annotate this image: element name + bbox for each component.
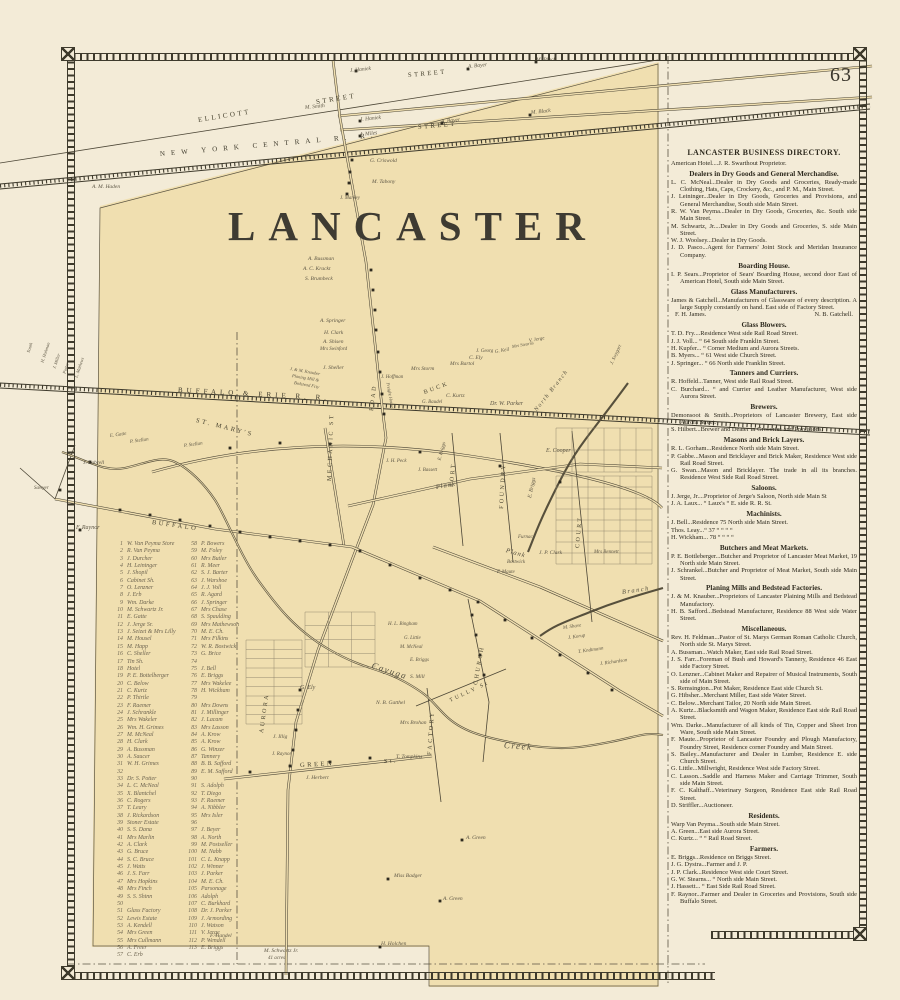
directory-entry: Wm. Darke...Manufacturer of all kinds of… <box>671 722 857 737</box>
resident-list-item: 94A. Nibbler <box>186 805 264 812</box>
directory-entry: A. Kurtz...Blacksmith and Wagon Maker, R… <box>671 707 857 722</box>
frame-border-top <box>67 53 859 61</box>
map-label: Mrs Bennett <box>594 550 619 555</box>
frame-border-left <box>67 53 75 980</box>
resident-list-item: 106Adolph <box>186 894 264 901</box>
resident-list-item: 69Mrs Mathewson <box>186 622 264 629</box>
resident-list-item: 99M. Postseller <box>186 842 264 849</box>
directory-entry: G. Hibsher...Merchant Miller, East side … <box>671 692 857 699</box>
directory-section-heading: Brewers. <box>671 403 857 411</box>
resident-list-item: 102J. Winner <box>186 864 264 871</box>
resident-list-item: 64J. J. Voll <box>186 585 264 592</box>
map-label: A. Shisen <box>323 339 343 345</box>
directory-entry: M. Schwartz, Jr....Dealer in Dry Goods a… <box>671 223 857 238</box>
directory-entry: J. S. Farr...Foreman of Bush and Howard'… <box>671 656 857 671</box>
resident-list-item: 84A. Krow <box>186 732 264 739</box>
resident-list-item: 50 <box>112 901 190 908</box>
resident-list-item: 22P. Thirtle <box>112 695 190 702</box>
resident-list-item: 86G. Winzer <box>186 747 264 754</box>
resident-list-item: 82J. Lacam <box>186 717 264 724</box>
directory-intro: American Hotel....J. R. Swarthout Propri… <box>671 160 857 167</box>
resident-list-item: 47Mrs Hopkins <box>112 879 190 886</box>
resident-list-item: 2R. Van Peyma <box>112 548 190 555</box>
resident-list-item: 14M. Housel <box>112 636 190 643</box>
resident-list-item: 24J. Schrankle <box>112 710 190 717</box>
resident-list-item: 75J. Bell <box>186 666 264 673</box>
map-label: Mrs Bartol <box>450 361 474 367</box>
map-label: C. Kurtz <box>446 393 465 399</box>
map-label: J. Georg <box>476 349 493 354</box>
resident-list-item: 60Mrs Butler <box>186 556 264 563</box>
resident-list-item: 97J. Beyer <box>186 827 264 834</box>
map-label: J. P. Clark <box>539 550 562 556</box>
resident-list-item: 15M. Happ <box>112 644 190 651</box>
directory-entry: E. Briggs...Residence on Briggs Street. <box>671 854 857 861</box>
map-label: H. Clark <box>324 330 343 336</box>
resident-list-item: 1W. Van Peyma Store <box>112 541 190 548</box>
resident-list-item: 104M. E. Ch. <box>186 879 264 886</box>
resident-list-item: 79 <box>186 695 264 702</box>
frame-corner-bottom-right <box>853 927 867 941</box>
frame-corner-top-right <box>853 47 867 61</box>
map-label: A. C. Krackt <box>303 266 331 272</box>
resident-list-item: 38J. Rickardson <box>112 813 190 820</box>
resident-list-item: 21C. Kurtz <box>112 688 190 695</box>
directory-entry: B. Myers... “ 61 West side Church Street… <box>671 352 857 359</box>
directory-sections: Dealers in Dry Goods and General Merchan… <box>671 170 857 905</box>
resident-list-item: 26Wm. H. Grimes <box>112 725 190 732</box>
map-label: A. Springer <box>320 318 345 324</box>
resident-list-item: 37T. Leary <box>112 805 190 812</box>
directory-section-heading: Butchers and Meat Markets. <box>671 544 857 552</box>
map-label: M. Tabony <box>372 179 395 185</box>
resident-list-item: 72W. R. Bostwick <box>186 644 264 651</box>
directory-entry: S. Remsington...Pot Maker, Residence Eas… <box>671 685 857 692</box>
directory-section-heading: Boarding House. <box>671 262 857 270</box>
resident-list-item: 62S. J. Barter <box>186 570 264 577</box>
resident-list-item: 3J. Durcher <box>112 556 190 563</box>
directory-entry: W. J. Woolsey...Dealer in Dry Goods. <box>671 237 857 244</box>
directory-section-heading: Planing Mills and Bedstead Factories. <box>671 584 857 592</box>
resident-list-item: 55Mrs Cullmann <box>112 938 190 945</box>
map-label: N. B. Gatthel <box>376 700 405 706</box>
directory-entry: A. Bussman...Watch Maker, East side Rail… <box>671 649 857 656</box>
resident-list-item: 19P. E. Bottelberger <box>112 673 190 680</box>
map-label: F. Maute <box>497 570 515 575</box>
directory-entry: J. A. Laux... “ Laux's “ E. side R. R. S… <box>671 500 857 507</box>
map-label: J. Hoffman <box>381 375 403 380</box>
directory-entry: J. Leininger...Dealer in Dry Goods, Groc… <box>671 193 857 208</box>
resident-list-item: 45J. Watts <box>112 864 190 871</box>
page-number: 63 <box>830 64 852 87</box>
directory-entry: Warp Van Peyma...South side Main Street. <box>671 821 857 828</box>
directory-entry: O. Lenzner...Cabinet Maker and Repairer … <box>671 671 857 686</box>
frame-corner-top-left <box>61 47 75 61</box>
resident-list-item: 4H. Leininger <box>112 563 190 570</box>
resident-list-item: 18Hotel <box>112 666 190 673</box>
resident-list-item: 111V. Jerge <box>186 930 264 937</box>
directory-entry: C. Below...Merchant Tailor, 20 North sid… <box>671 700 857 707</box>
directory-entry: L. C. McNeal...Dealer in Dry Goods and G… <box>671 179 857 194</box>
map-label: G. Criswold <box>370 158 397 164</box>
directory-entry: P. E. Bottleberger...Butcher and Proprie… <box>671 553 857 568</box>
map-label: M. McNeal <box>400 645 423 650</box>
resident-list-item: 20C. Below <box>112 681 190 688</box>
directory-entry: J. Hassett... “ East Side Rail Road Stre… <box>671 883 857 890</box>
resident-list-item: 90 <box>186 776 264 783</box>
directory-section-heading: Machinists. <box>671 510 857 518</box>
map-label: 41 acres <box>268 956 285 961</box>
resident-list-item: 68S. Spaulding <box>186 614 264 621</box>
map-label: Dr. W. Parker <box>490 401 523 407</box>
resident-list-item: 110J. Watson <box>186 923 264 930</box>
map-label: J. Labrell <box>83 460 104 466</box>
directory-section-heading: Residents. <box>671 812 857 820</box>
map-label: E. Briggs <box>410 658 429 663</box>
directory-entry: C. Kurtz... “ “ Rail Road Street. <box>671 835 857 842</box>
resident-list-item: 73G. Brice <box>186 651 264 658</box>
directory-entry: J. P. Clark...Residence West side Court … <box>671 869 857 876</box>
resident-list-item: 61R. Meer <box>186 563 264 570</box>
map-label: A. Green <box>443 896 463 902</box>
resident-list-item: 6Cabinet Sh. <box>112 578 190 585</box>
map-label: J. Markey <box>340 196 360 201</box>
directory-section-heading: Masons and Brick Layers. <box>671 436 857 444</box>
resident-list-item: 81J. Millinger <box>186 710 264 717</box>
resident-list-item: 49S. S. Shinn <box>112 894 190 901</box>
resident-list-item: 67Mrs Chase <box>186 607 264 614</box>
directory-entry: H. Wickham... 78 “ “ “ “ <box>671 534 857 541</box>
resident-list-item: 103J. Parker <box>186 871 264 878</box>
resident-list-item: 96 <box>186 820 264 827</box>
resident-list-item: 95Mrs Isler <box>186 813 264 820</box>
resident-list-item: 88B. B. Safford <box>186 761 264 768</box>
resident-list-item: 85A. Krow <box>186 739 264 746</box>
directory-entry: S. Bailey...Manufacturer and Dealer in L… <box>671 751 857 766</box>
resident-list-item: 105Parsonage <box>186 886 264 893</box>
directory-entry: Rev. H. Feldman...Pastor of St. Marys Ge… <box>671 634 857 649</box>
directory-entry: J. J. Voll... “ 64 South side Franklin S… <box>671 338 857 345</box>
resident-list-item: 43G. Bruce <box>112 849 190 856</box>
frame-border-right <box>859 53 867 939</box>
map-label: Sawyer <box>34 486 49 491</box>
resident-list-item: 76E. Briggs <box>186 673 264 680</box>
resident-list-item: 42A. Clark <box>112 842 190 849</box>
map-label: Bostwick <box>507 560 525 565</box>
resident-list-item: 83Mrs Lasson <box>186 725 264 732</box>
frame-corner-bottom-left <box>61 966 75 980</box>
map-label: T. Tompkins <box>396 754 422 760</box>
directory-entry: G. W. Stearns... “ North side Main Stree… <box>671 876 857 883</box>
map-label: H. L. Bingham <box>388 622 417 627</box>
map-label: S. Mill <box>410 674 425 680</box>
map-label: A. Green <box>466 835 486 841</box>
map-label: F. Raynor <box>76 525 100 531</box>
resident-list-item: 113E. Briggs <box>186 945 264 952</box>
directory-entry: J. D. Pasco...Agent for Farmers' Joint S… <box>671 244 857 259</box>
directory-entry: A. Green...East side Aurora Street. <box>671 828 857 835</box>
directory-entry: H. B. Safford...Bedstead Manufacturer, R… <box>671 608 857 623</box>
resident-list-item: 27M. McNeal <box>112 732 190 739</box>
map-label: G. Baudel <box>422 400 442 405</box>
resident-list-item: 29A. Bussman <box>112 747 190 754</box>
directory-section-heading: Glass Manufacturers. <box>671 288 857 296</box>
resident-list-item: 71Mrs Filkins <box>186 636 264 643</box>
map-label: Mrs Brohan <box>400 720 427 726</box>
resident-list-item: 13J. Seizet & Mrs Lilly <box>112 629 190 636</box>
directory-entry: G. Swan...Mason and Bricklayer. The trad… <box>671 467 857 482</box>
directory-section-heading: Dealers in Dry Goods and General Merchan… <box>671 170 857 178</box>
directory-entry: J. Springer... “ 66 North side Franklin … <box>671 360 857 367</box>
directory-entry: P. Gabbe...Mason and Bricklayer and Bric… <box>671 453 857 468</box>
resident-list-item: 5J. Shopil <box>112 570 190 577</box>
resident-list-item: 74 <box>186 659 264 666</box>
resident-list-item: 80Mrs Downs <box>186 703 264 710</box>
resident-list-item: 46J. S. Farr <box>112 871 190 878</box>
resident-list-item: 33Dr. S. Potter <box>112 776 190 783</box>
map-label: Mrs Storm <box>411 366 434 372</box>
resident-list-item: 70M. E. Ch. <box>186 629 264 636</box>
directory-entry: R. L. Gorham...Residence North side Main… <box>671 445 857 452</box>
resident-list-item: 57C. Erb <box>112 952 190 959</box>
resident-list-column-2: 58P. Bowers59M. Foley60Mrs Butler61R. Me… <box>186 541 264 952</box>
resident-list-item: 35X. Blantchel <box>112 791 190 798</box>
map-label: J. H. Peck <box>386 459 407 464</box>
directory-entry: F. H. James.N. B. Gatchell. <box>671 311 857 319</box>
map-sheet: ELLICOTTSTREETSTREETSTREETNEW YORK CENTR… <box>0 0 900 1000</box>
directory-entry: J. Jerge, Jr....Proprietor of Jerge's Sa… <box>671 493 857 500</box>
frame-border-directory-bottom <box>711 931 867 939</box>
resident-list-column-1: 1W. Van Peyma Store2R. Van Peyma3J. Durc… <box>112 541 190 960</box>
resident-list-item: 89E. M. Safford <box>186 769 264 776</box>
map-label: A. Bussman <box>308 256 334 262</box>
directory-entry: Thos. Leay...“ 37 “ “ “ “ <box>671 527 857 534</box>
directory-entry: F. C. Kalthaff...Veterinary Surgeon, Res… <box>671 787 857 802</box>
resident-list-item: 12J. Jerge Sr. <box>112 622 190 629</box>
directory-title: LANCASTER BUSINESS DIRECTORY. <box>671 148 857 157</box>
map-label: G. Little <box>404 636 421 641</box>
resident-list-item: 98A. North <box>186 835 264 842</box>
resident-list-item: 11E. Gatte <box>112 614 190 621</box>
resident-list-item: 36C. Rogers <box>112 798 190 805</box>
resident-list-item: 59M. Foley <box>186 548 264 555</box>
directory-entry: D. Striffler...Auctioneer. <box>671 802 857 809</box>
resident-list-item: 44S. C. Bruce <box>112 857 190 864</box>
map-label: G. Ely <box>300 685 315 691</box>
resident-list-item: 10M. Schwartz Jr. <box>112 607 190 614</box>
resident-list-item: 77Mrs Wakelee <box>186 681 264 688</box>
resident-list-item: 58P. Bowers <box>186 541 264 548</box>
resident-list-item: 100M. Nabb <box>186 849 264 856</box>
resident-list-item: 41Mrs Marlin <box>112 835 190 842</box>
business-directory: LANCASTER BUSINESS DIRECTORY. American H… <box>671 148 857 905</box>
resident-list-item: 101C. L. Knapp <box>186 857 264 864</box>
resident-list-item: 34L. C. McNeal <box>112 783 190 790</box>
directory-entry: H. Kupfer... “ Corner Medium and Aurora … <box>671 345 857 352</box>
resident-list-item: 28H. Clark <box>112 739 190 746</box>
resident-list-item: 51Glass Factory <box>112 908 190 915</box>
map-label: J. Illig <box>273 734 287 740</box>
resident-list-item: 56A. Freer <box>112 945 190 952</box>
directory-section-heading: Farmers. <box>671 845 857 853</box>
resident-list-item: 63J. Warshoe <box>186 578 264 585</box>
directory-entry: T. D. Fry....Residence West side Rail Ro… <box>671 330 857 337</box>
directory-entry: J. G. Dystra...Farmer and J. P. <box>671 861 857 868</box>
directory-entry: C. Lasson...Saddle and Harness Maker and… <box>671 773 857 788</box>
map-label: C. Ely <box>469 355 483 361</box>
directory-section-heading: Saloons. <box>671 484 857 492</box>
directory-entry: C. Burchard... “ and Currier and Leather… <box>671 386 857 401</box>
resident-list-item: 30A. Saucer <box>112 754 190 761</box>
map-label: J. Raynor <box>272 752 291 757</box>
resident-list-item: 23F. Raemer <box>112 703 190 710</box>
map-label: Creek <box>504 740 533 752</box>
resident-list-item: 17Tin Sh. <box>112 659 190 666</box>
map-label: Mrs Swinford <box>320 347 347 352</box>
resident-list-item: 25Mrs Wakeler <box>112 717 190 724</box>
resident-list-item: 7O. Lenzner <box>112 585 190 592</box>
resident-list-item: 40S. S. Dana <box>112 827 190 834</box>
directory-entry: Demonsoot & Smith...Proprietors of Lanca… <box>671 412 857 427</box>
directory-entry: I. P. Sears...Proprietor of Sears' Board… <box>671 271 857 286</box>
resident-list-item: 66J. Springer <box>186 600 264 607</box>
map-label: Miss Badger <box>394 873 422 879</box>
directory-section-heading: Tanners and Curriers. <box>671 369 857 377</box>
map-label: H. Holchen <box>381 941 406 947</box>
map-label: S. Brumbeck <box>305 276 333 282</box>
directory-entry: F. Raynor...Farmer and Dealer in Groceri… <box>671 891 857 906</box>
map-label: E. Cooper <box>546 448 571 454</box>
resident-list-item: 107C. Burkhard <box>186 901 264 908</box>
map-label: J. Bassett <box>418 468 437 473</box>
resident-list-item: 52Lewis Estate <box>112 916 190 923</box>
map-label: J. Sheller <box>323 365 344 371</box>
resident-list-item: 91S. Adolph <box>186 783 264 790</box>
directory-section-heading: Glass Blowers. <box>671 321 857 329</box>
resident-list-item: 8J. Erb <box>112 592 190 599</box>
map-label: Furnace <box>518 535 535 540</box>
resident-list-item: 32 <box>112 769 190 776</box>
resident-list-item: 9Wm. Darke <box>112 600 190 607</box>
directory-entry: R. W. Van Peyma...Dealer in Dry Goods, G… <box>671 208 857 223</box>
resident-list-item: 78H. Wickham <box>186 688 264 695</box>
resident-list-item: 108Dr. J. Parker <box>186 908 264 915</box>
directory-entry: J. & M. Knauber...Proprietors of Lancast… <box>671 593 857 608</box>
resident-list-item: 39Stoner Estate <box>112 820 190 827</box>
directory-entry: S. Hilbert...Brewer and Dealer in Grocer… <box>671 426 857 433</box>
directory-entry: J. Bell...Residence 75 North side Main S… <box>671 519 857 526</box>
resident-list-item: 112P. Wendell <box>186 938 264 945</box>
map-label: M. Schwartz Jr. <box>264 948 298 954</box>
resident-list-item: 54Mrs Green <box>112 930 190 937</box>
resident-list-item: 65R. Agard <box>186 592 264 599</box>
resident-list-item: 93F. Raemer <box>186 798 264 805</box>
map-label: A. M. Haden <box>92 184 120 190</box>
resident-list-item: 48Mrs Finch <box>112 886 190 893</box>
directory-entry: F. Maute...Proprietor of Lancaster Found… <box>671 736 857 751</box>
directory-entry: G. Little...Millwright, Residence West s… <box>671 765 857 772</box>
resident-list-item: 53A. Kendell <box>112 923 190 930</box>
map-title: LANCASTER <box>228 202 598 250</box>
directory-entry: R. Hoffeld...Tanner, West side Rail Road… <box>671 378 857 385</box>
resident-list-item: 92T. Diego <box>186 791 264 798</box>
resident-list-item: 16C. Sheller <box>112 651 190 658</box>
frame-border-bottom-left <box>67 972 715 980</box>
resident-list-item: 109J. Armording <box>186 916 264 923</box>
resident-list-item: 31W. H. Grimes <box>112 761 190 768</box>
map-label: J. Herbert <box>306 775 329 781</box>
directory-entry: J. Schrankel...Butcher and Proprietor of… <box>671 567 857 582</box>
directory-section-heading: Miscellaneous. <box>671 625 857 633</box>
directory-entry: James & Gatchell...Manufacturers of Glas… <box>671 297 857 312</box>
